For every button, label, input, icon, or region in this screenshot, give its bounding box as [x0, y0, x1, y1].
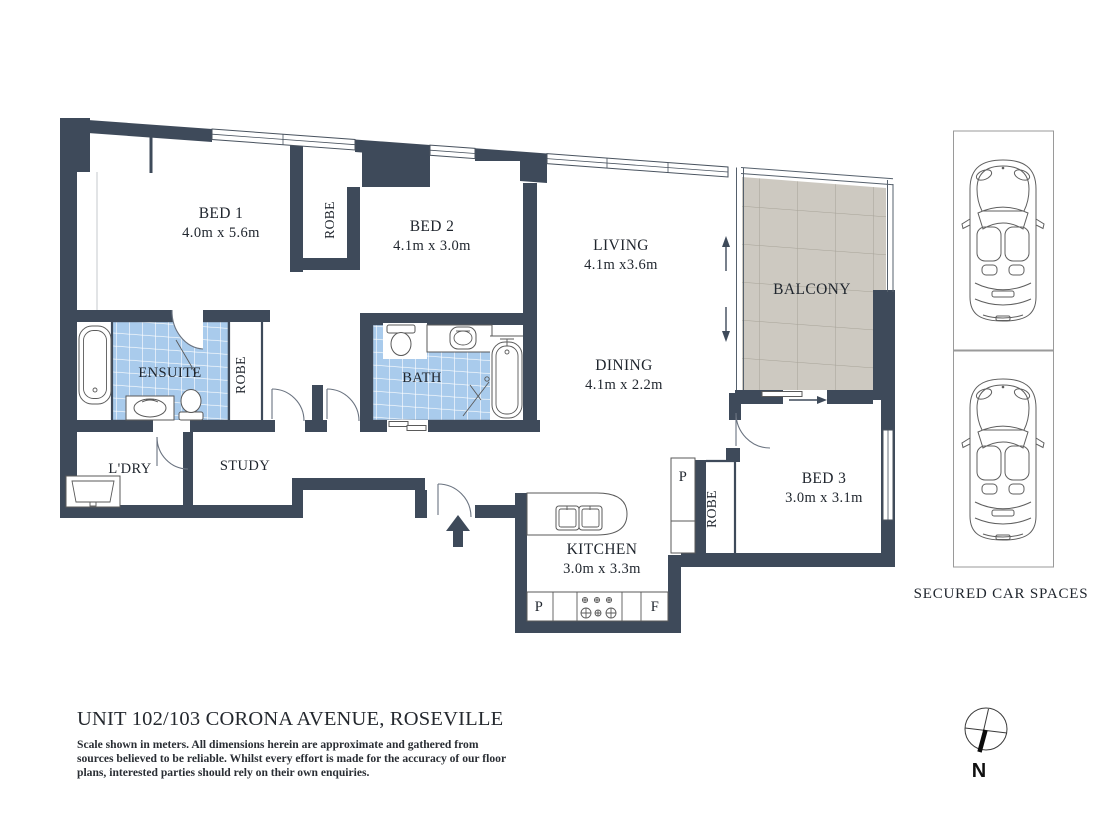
disclaimer-line-3: plans, interested parties should rely on…: [77, 766, 597, 780]
windows: [212, 129, 728, 177]
car-spaces: [954, 131, 1054, 567]
room-label-kitchen: KITCHEN: [567, 541, 638, 558]
entry-arrow-icon: [446, 515, 470, 547]
room-label-bed1: BED 1: [199, 205, 244, 222]
car-spaces-caption: SECURED CAR SPACES: [914, 586, 1089, 602]
marker-pantry-kitchen: P: [535, 599, 543, 615]
kitchen-bench: [527, 592, 668, 621]
room-label-study: STUDY: [220, 458, 270, 474]
laundry-tub: [66, 476, 120, 507]
plan-title: UNIT 102/103 CORONA AVENUE, ROSEVILLE: [77, 708, 597, 731]
room-dims-bed3: 3.0m x 3.1m: [785, 490, 863, 506]
disclaimer-line-2: sources believed to be reliable. Whilst …: [77, 752, 597, 766]
sliding-window-arrows: [722, 236, 730, 342]
disclaimer: Scale shown in meters. All dimensions he…: [77, 738, 597, 780]
floorplan-page: N BED 1 4.0m x 5.6m BED 2 4.1m x 3.0m LI…: [0, 0, 1120, 825]
room-label-bath: BATH: [402, 370, 442, 386]
room-label-robe-ensuite: ROBE: [233, 356, 248, 394]
compass: N: [965, 708, 1007, 782]
room-dims-kitchen: 3.0m x 3.3m: [563, 561, 641, 577]
room-dims-living: 4.1m x3.6m: [584, 257, 658, 273]
room-label-robe-bed3: ROBE: [704, 490, 719, 528]
room-label-robe-bed1: ROBE: [322, 201, 337, 239]
marker-fridge: F: [651, 599, 659, 615]
footer: UNIT 102/103 CORONA AVENUE, ROSEVILLE Sc…: [77, 708, 597, 780]
room-dims-dining: 4.1m x 2.2m: [585, 377, 663, 393]
kitchen-island: [527, 493, 627, 535]
compass-north-label: N: [972, 760, 986, 782]
room-label-ensuite: ENSUITE: [138, 365, 201, 381]
room-label-balcony: BALCONY: [773, 281, 851, 298]
room-label-dining: DINING: [595, 357, 653, 374]
marker-pantry-bed3: P: [679, 469, 687, 485]
room-label-laundry: L'DRY: [108, 461, 151, 477]
disclaimer-line-1: Scale shown in meters. All dimensions he…: [77, 738, 597, 752]
room-label-bed2: BED 2: [410, 218, 455, 235]
floorplan-drawing: N BED 1 4.0m x 5.6m BED 2 4.1m x 3.0m LI…: [0, 0, 1120, 825]
room-label-bed3: BED 3: [802, 470, 847, 487]
room-dims-bed1: 4.0m x 5.6m: [182, 225, 260, 241]
room-label-living: LIVING: [593, 237, 649, 254]
room-dims-bed2: 4.1m x 3.0m: [393, 238, 471, 254]
